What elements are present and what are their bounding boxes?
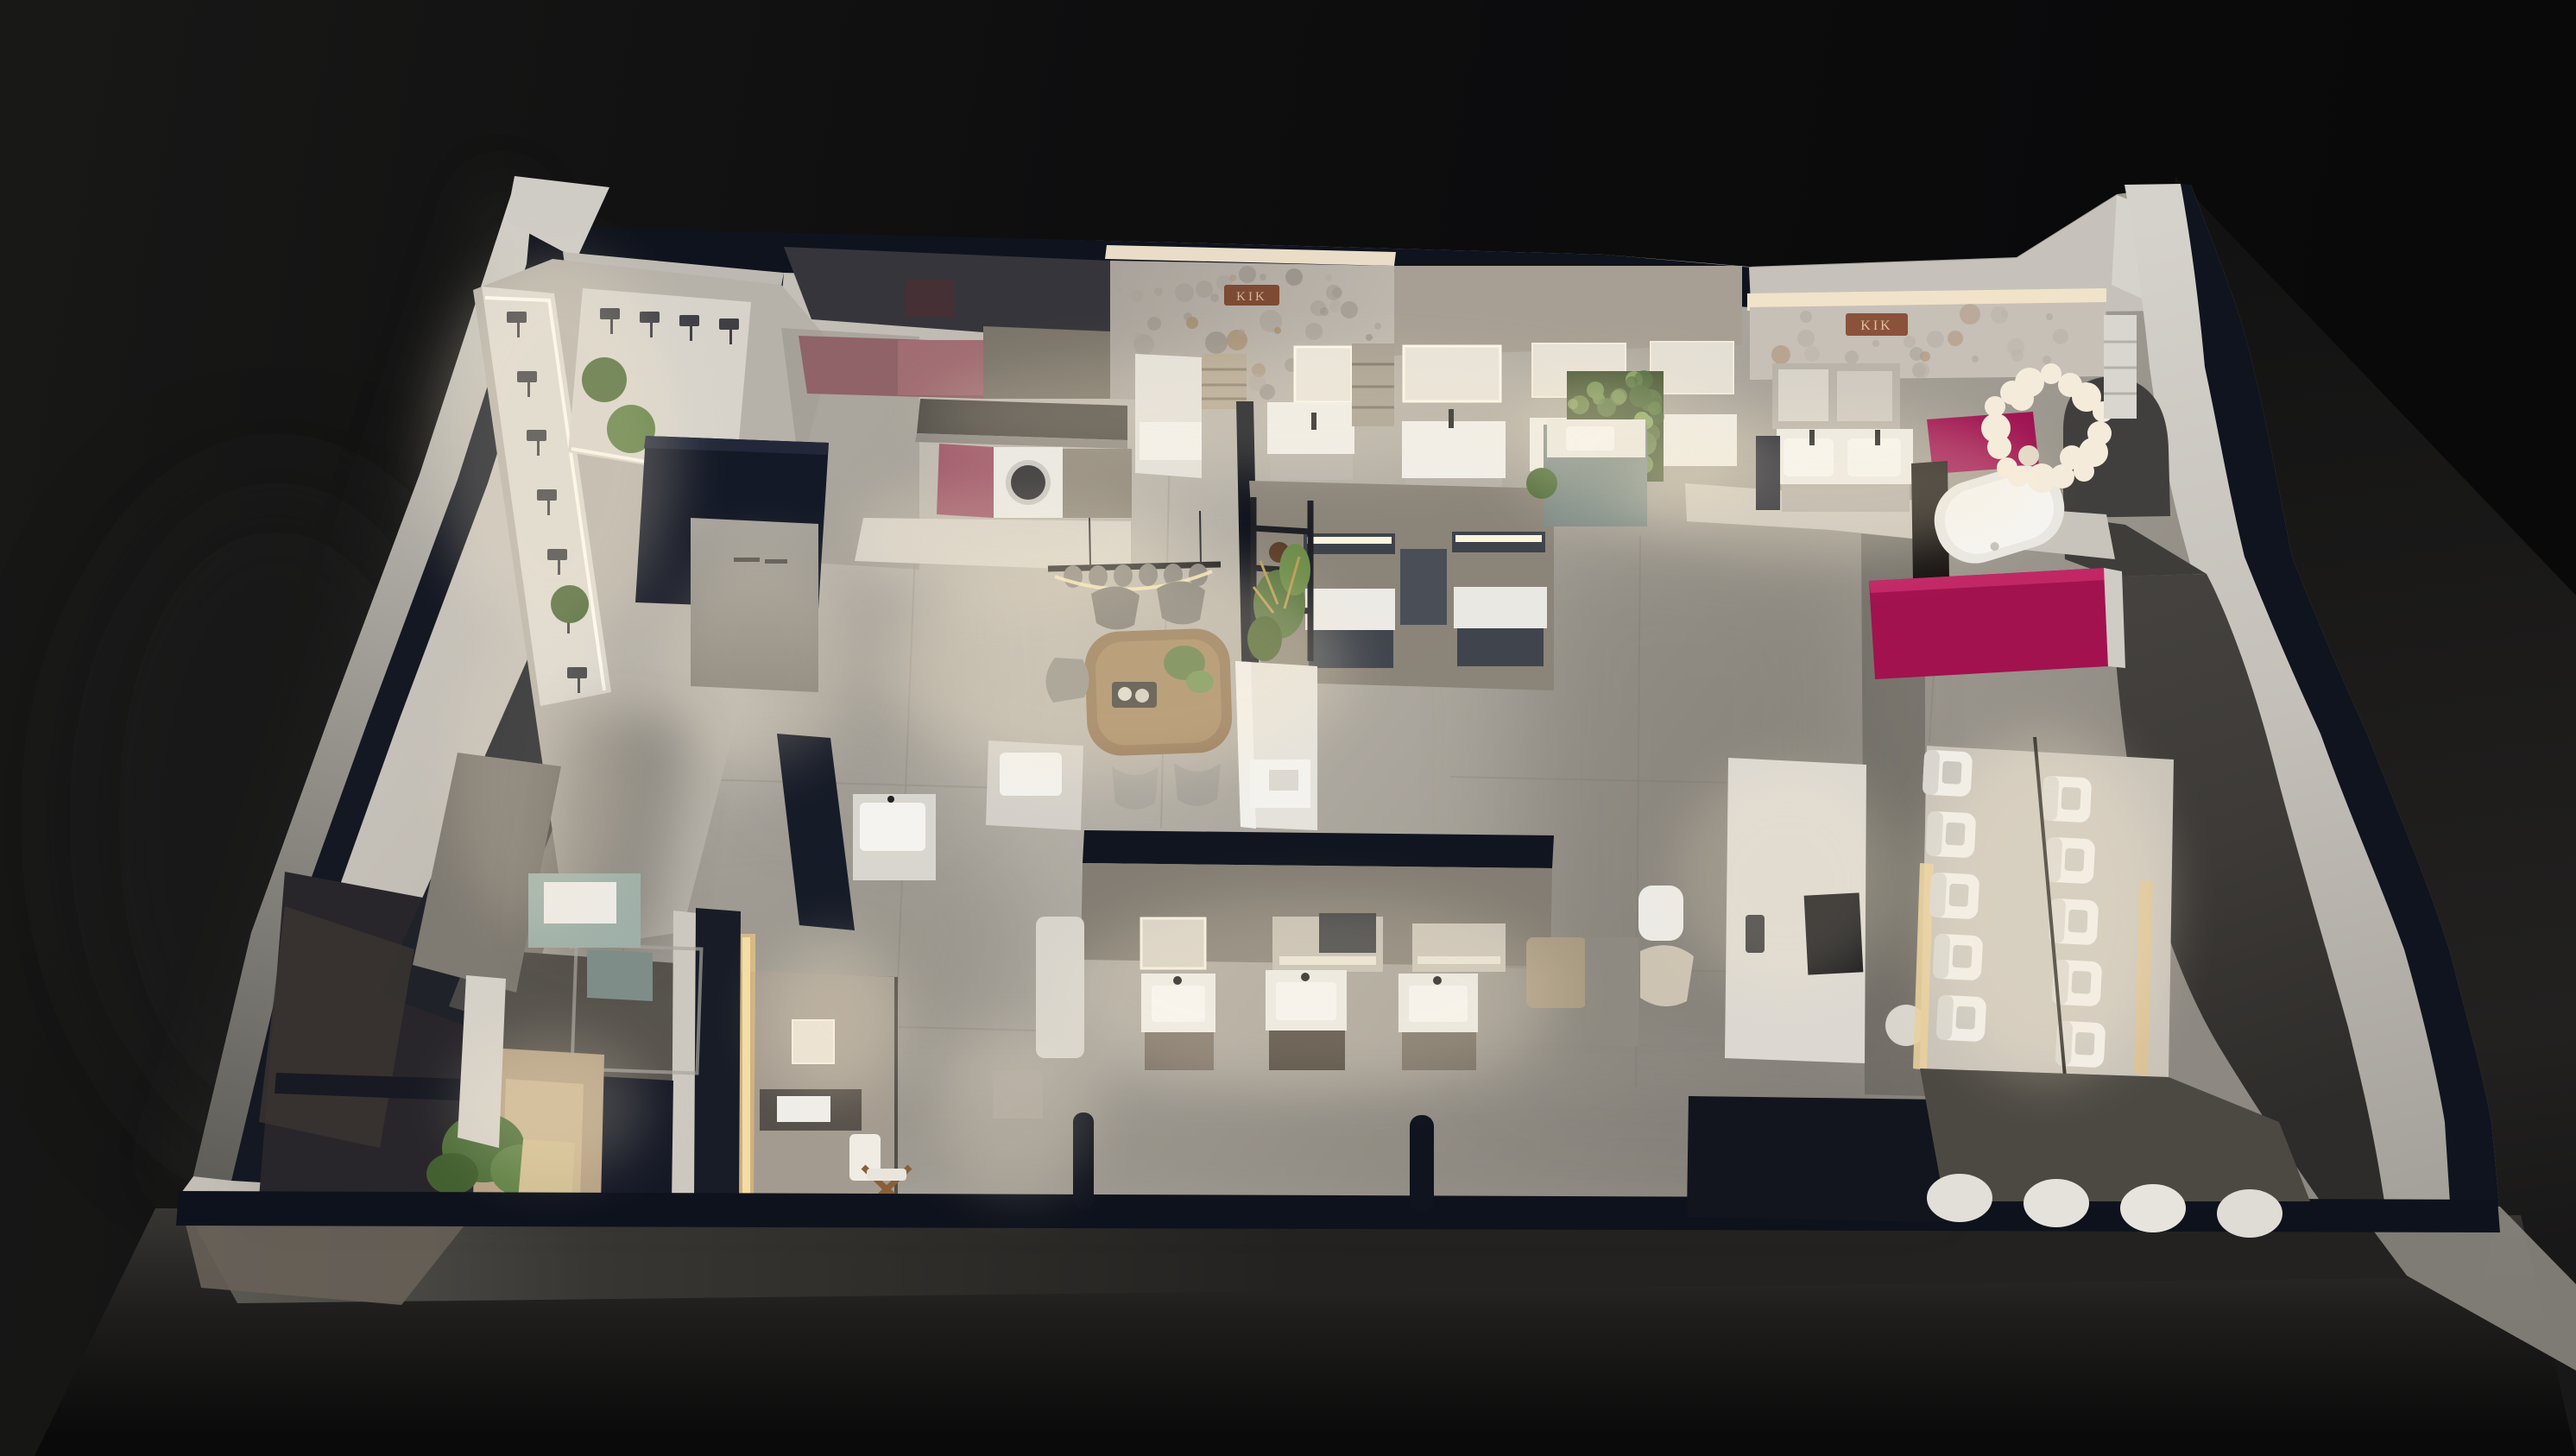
- svg-text:KIK: KIK: [1236, 290, 1267, 304]
- svg-text:KIK: KIK: [1860, 318, 1892, 333]
